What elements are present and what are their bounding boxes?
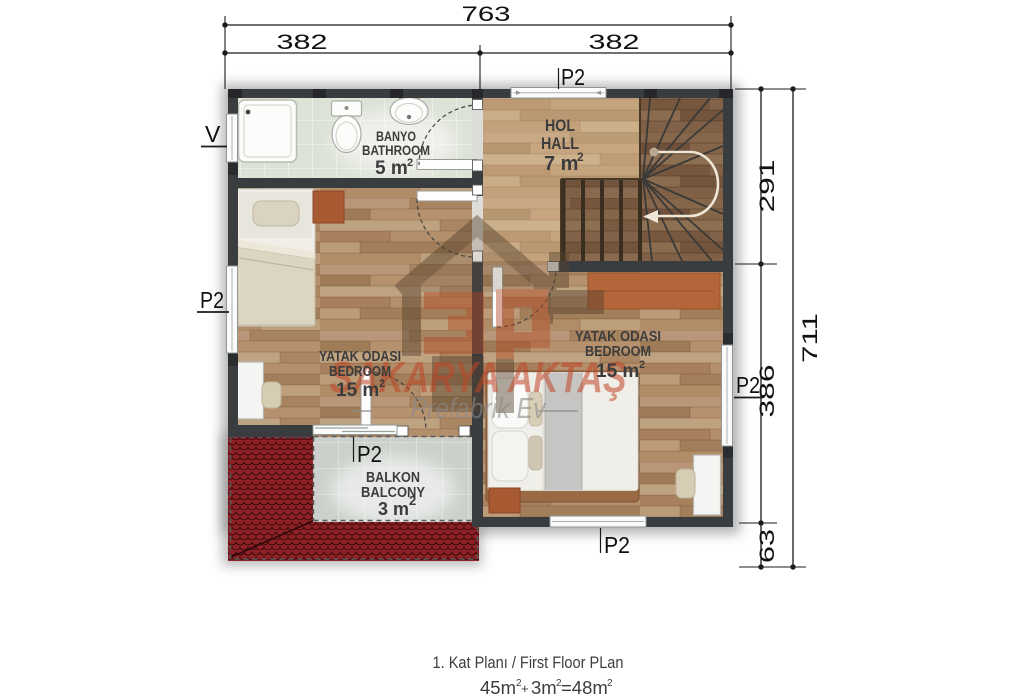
svg-text:2: 2 bbox=[639, 359, 645, 371]
svg-text:P2: P2 bbox=[604, 532, 630, 558]
svg-text:45m: 45m bbox=[480, 677, 516, 698]
svg-text:15 m: 15 m bbox=[596, 361, 639, 382]
svg-text:P2: P2 bbox=[200, 287, 224, 313]
svg-text:711: 711 bbox=[799, 313, 822, 363]
svg-text:2: 2 bbox=[607, 678, 613, 689]
svg-text:7 m: 7 m bbox=[544, 153, 578, 175]
svg-text:291: 291 bbox=[756, 160, 779, 213]
svg-text:1. Kat Planı / First Floor PLa: 1. Kat Planı / First Floor PLan bbox=[433, 653, 624, 672]
svg-text:BEDROOM: BEDROOM bbox=[585, 344, 651, 360]
svg-text:2: 2 bbox=[409, 493, 416, 508]
svg-text:763: 763 bbox=[462, 3, 511, 26]
svg-text:HALL: HALL bbox=[541, 134, 579, 153]
svg-text:P2: P2 bbox=[736, 372, 760, 398]
svg-text:2: 2 bbox=[407, 157, 413, 169]
svg-text:+: + bbox=[521, 681, 529, 696]
svg-text:P2: P2 bbox=[561, 64, 585, 90]
svg-text:Prefabrik Ev: Prefabrik Ev bbox=[411, 393, 547, 425]
svg-text:BATHROOM: BATHROOM bbox=[362, 143, 430, 158]
svg-text:3m: 3m bbox=[531, 677, 557, 698]
svg-text:V: V bbox=[205, 121, 221, 147]
svg-text:P2: P2 bbox=[357, 441, 382, 467]
svg-text:382: 382 bbox=[277, 31, 328, 54]
svg-text:BALKON: BALKON bbox=[366, 470, 420, 486]
svg-text:2: 2 bbox=[379, 378, 385, 390]
svg-text:382: 382 bbox=[589, 31, 640, 54]
svg-text:5 m: 5 m bbox=[375, 158, 408, 179]
svg-text:63: 63 bbox=[756, 529, 779, 563]
svg-text:3 m: 3 m bbox=[378, 499, 409, 519]
svg-text:YATAK ODASI: YATAK ODASI bbox=[319, 349, 401, 365]
svg-text:2: 2 bbox=[577, 150, 584, 164]
svg-text:15 m: 15 m bbox=[336, 380, 379, 401]
svg-text:BANYO: BANYO bbox=[376, 129, 416, 144]
svg-text:HOL: HOL bbox=[545, 116, 575, 135]
svg-text:=48m: =48m bbox=[561, 677, 608, 698]
svg-text:YATAK ODASI: YATAK ODASI bbox=[575, 329, 661, 345]
